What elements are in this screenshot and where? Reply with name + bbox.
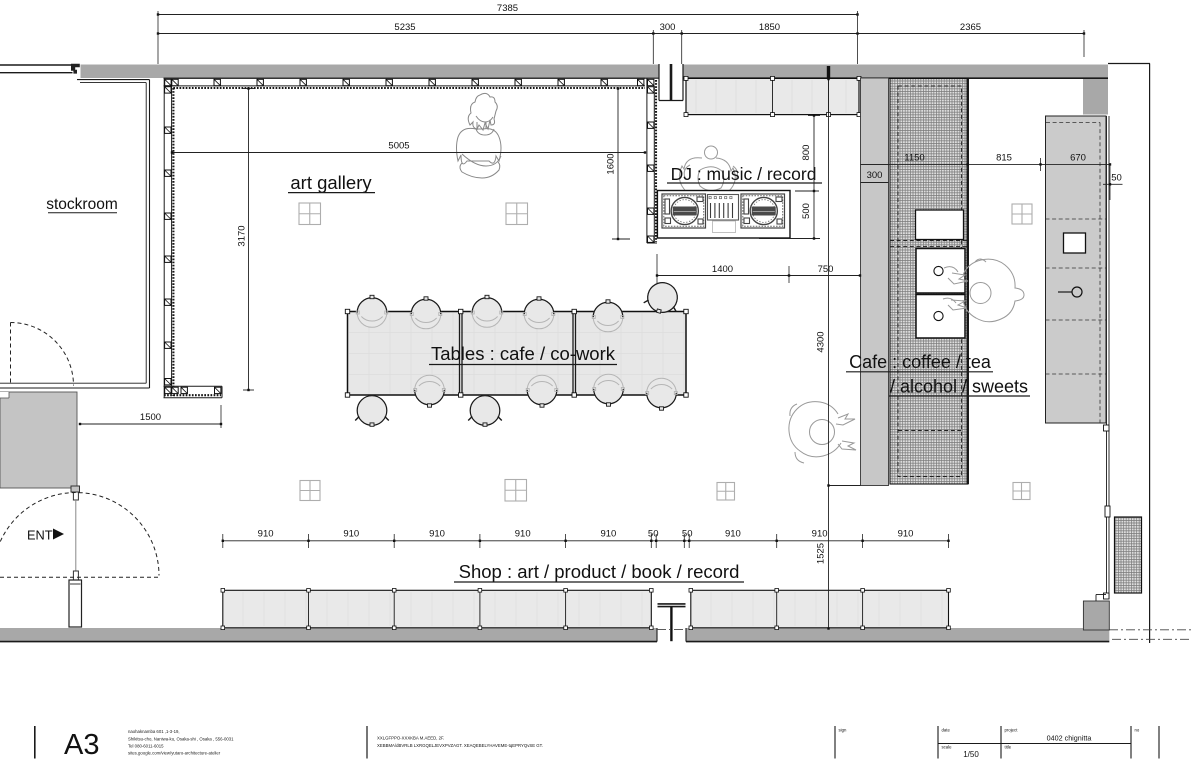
svg-text:300: 300 [867, 170, 883, 181]
svg-text:project: project [1005, 728, 1019, 733]
svg-text:scale: scale [942, 745, 953, 750]
svg-text:4300: 4300 [816, 331, 827, 352]
svg-text:/ alcohol / sweets: / alcohol / sweets [890, 377, 1028, 397]
svg-text:Tables : cafe / co-work: Tables : cafe / co-work [431, 343, 616, 364]
svg-text:7385: 7385 [497, 3, 518, 14]
svg-text:500: 500 [801, 203, 812, 219]
svg-text:XEBBMA/dBVRLB LXRGQELJEVXPVZAG: XEBBMA/dBVRLB LXRGQELJEVXPVZAGT. XEAQEBE… [377, 743, 543, 748]
svg-text:naohaknamba 601 ,1-3-19,: naohaknamba 601 ,1-3-19, [128, 729, 180, 734]
svg-text:5235: 5235 [394, 22, 415, 33]
svg-text:50: 50 [682, 529, 693, 540]
svg-text:A3: A3 [64, 729, 99, 761]
svg-text:date: date [942, 728, 951, 733]
svg-text:910: 910 [812, 529, 828, 540]
svg-text:910: 910 [343, 529, 359, 540]
svg-text:0402 chignitta: 0402 chignitta [1047, 734, 1092, 743]
svg-text:910: 910 [898, 529, 914, 540]
svg-text:670: 670 [1070, 153, 1086, 164]
svg-text:3170: 3170 [237, 225, 248, 246]
svg-text:1400: 1400 [712, 264, 733, 275]
svg-text:stockroom: stockroom [46, 196, 118, 213]
svg-text:art gallery: art gallery [290, 172, 372, 193]
svg-text:1850: 1850 [759, 22, 780, 33]
svg-text:5005: 5005 [388, 141, 409, 152]
svg-text:2365: 2365 [960, 22, 981, 33]
svg-text:1525: 1525 [816, 543, 827, 564]
svg-text:DJ : music / record: DJ : music / record [671, 164, 817, 184]
svg-text:Tel 080-6011-6015: Tel 080-6011-6015 [128, 743, 164, 748]
svg-text:815: 815 [996, 153, 1012, 164]
svg-text:910: 910 [429, 529, 445, 540]
svg-text:910: 910 [725, 529, 741, 540]
svg-text:1/50: 1/50 [963, 750, 979, 759]
svg-text:50: 50 [648, 529, 659, 540]
svg-text:750: 750 [818, 264, 834, 275]
svg-text:50: 50 [1111, 173, 1122, 184]
svg-text:ENT: ENT [27, 528, 53, 543]
svg-text:910: 910 [258, 529, 274, 540]
svg-text:Shop : art / product / book /: Shop : art / product / book / record [459, 561, 740, 582]
svg-text:sign: sign [839, 728, 847, 733]
svg-text:1500: 1500 [140, 412, 161, 423]
svg-text:800: 800 [801, 145, 812, 161]
svg-text:no: no [1135, 728, 1140, 733]
svg-text:1150: 1150 [904, 153, 924, 164]
svg-text:sites.google.com/view/yutaro-a: sites.google.com/view/yutaro-architectur… [128, 750, 221, 755]
svg-text:XXLGFPPO-XXXKBA M.AEED, 2F.: XXLGFPPO-XXXKBA M.AEED, 2F. [377, 736, 444, 741]
svg-text:Cafe : coffee / tea: Cafe : coffee / tea [849, 352, 992, 372]
svg-text:300: 300 [660, 22, 676, 33]
svg-text:1600: 1600 [606, 153, 617, 174]
svg-text:Shikitsu-cho, Naniwa-ku, Osaka: Shikitsu-cho, Naniwa-ku, Osaka-shi , Osa… [128, 736, 234, 741]
svg-text:910: 910 [600, 529, 616, 540]
svg-text:910: 910 [515, 529, 531, 540]
svg-text:title: title [1005, 745, 1012, 750]
